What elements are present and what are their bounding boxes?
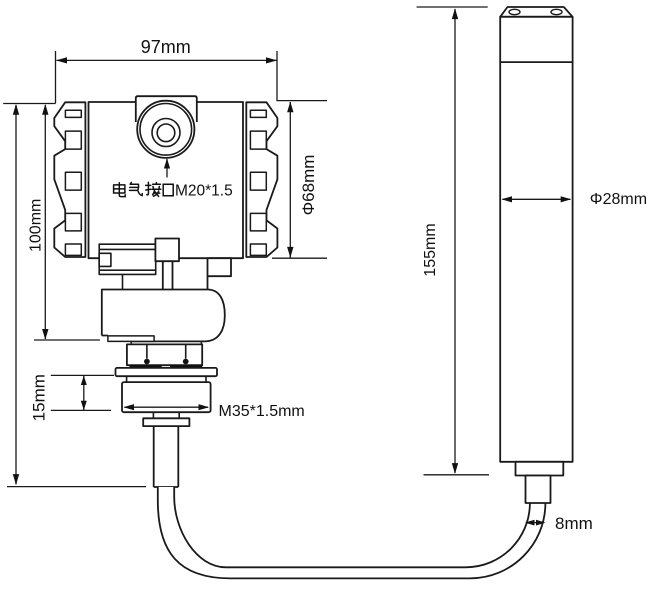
svg-text:8mm: 8mm bbox=[555, 514, 593, 533]
svg-text:100mm: 100mm bbox=[28, 199, 45, 252]
svg-text:M35*1.5mm: M35*1.5mm bbox=[219, 403, 305, 420]
svg-text:M20*1.5: M20*1.5 bbox=[175, 183, 233, 200]
svg-text:Φ68mm: Φ68mm bbox=[299, 155, 318, 216]
svg-text:155mm: 155mm bbox=[422, 223, 439, 276]
svg-text:15mm: 15mm bbox=[30, 374, 49, 421]
svg-text:97mm: 97mm bbox=[141, 37, 191, 57]
svg-text:Φ28mm: Φ28mm bbox=[590, 191, 647, 208]
